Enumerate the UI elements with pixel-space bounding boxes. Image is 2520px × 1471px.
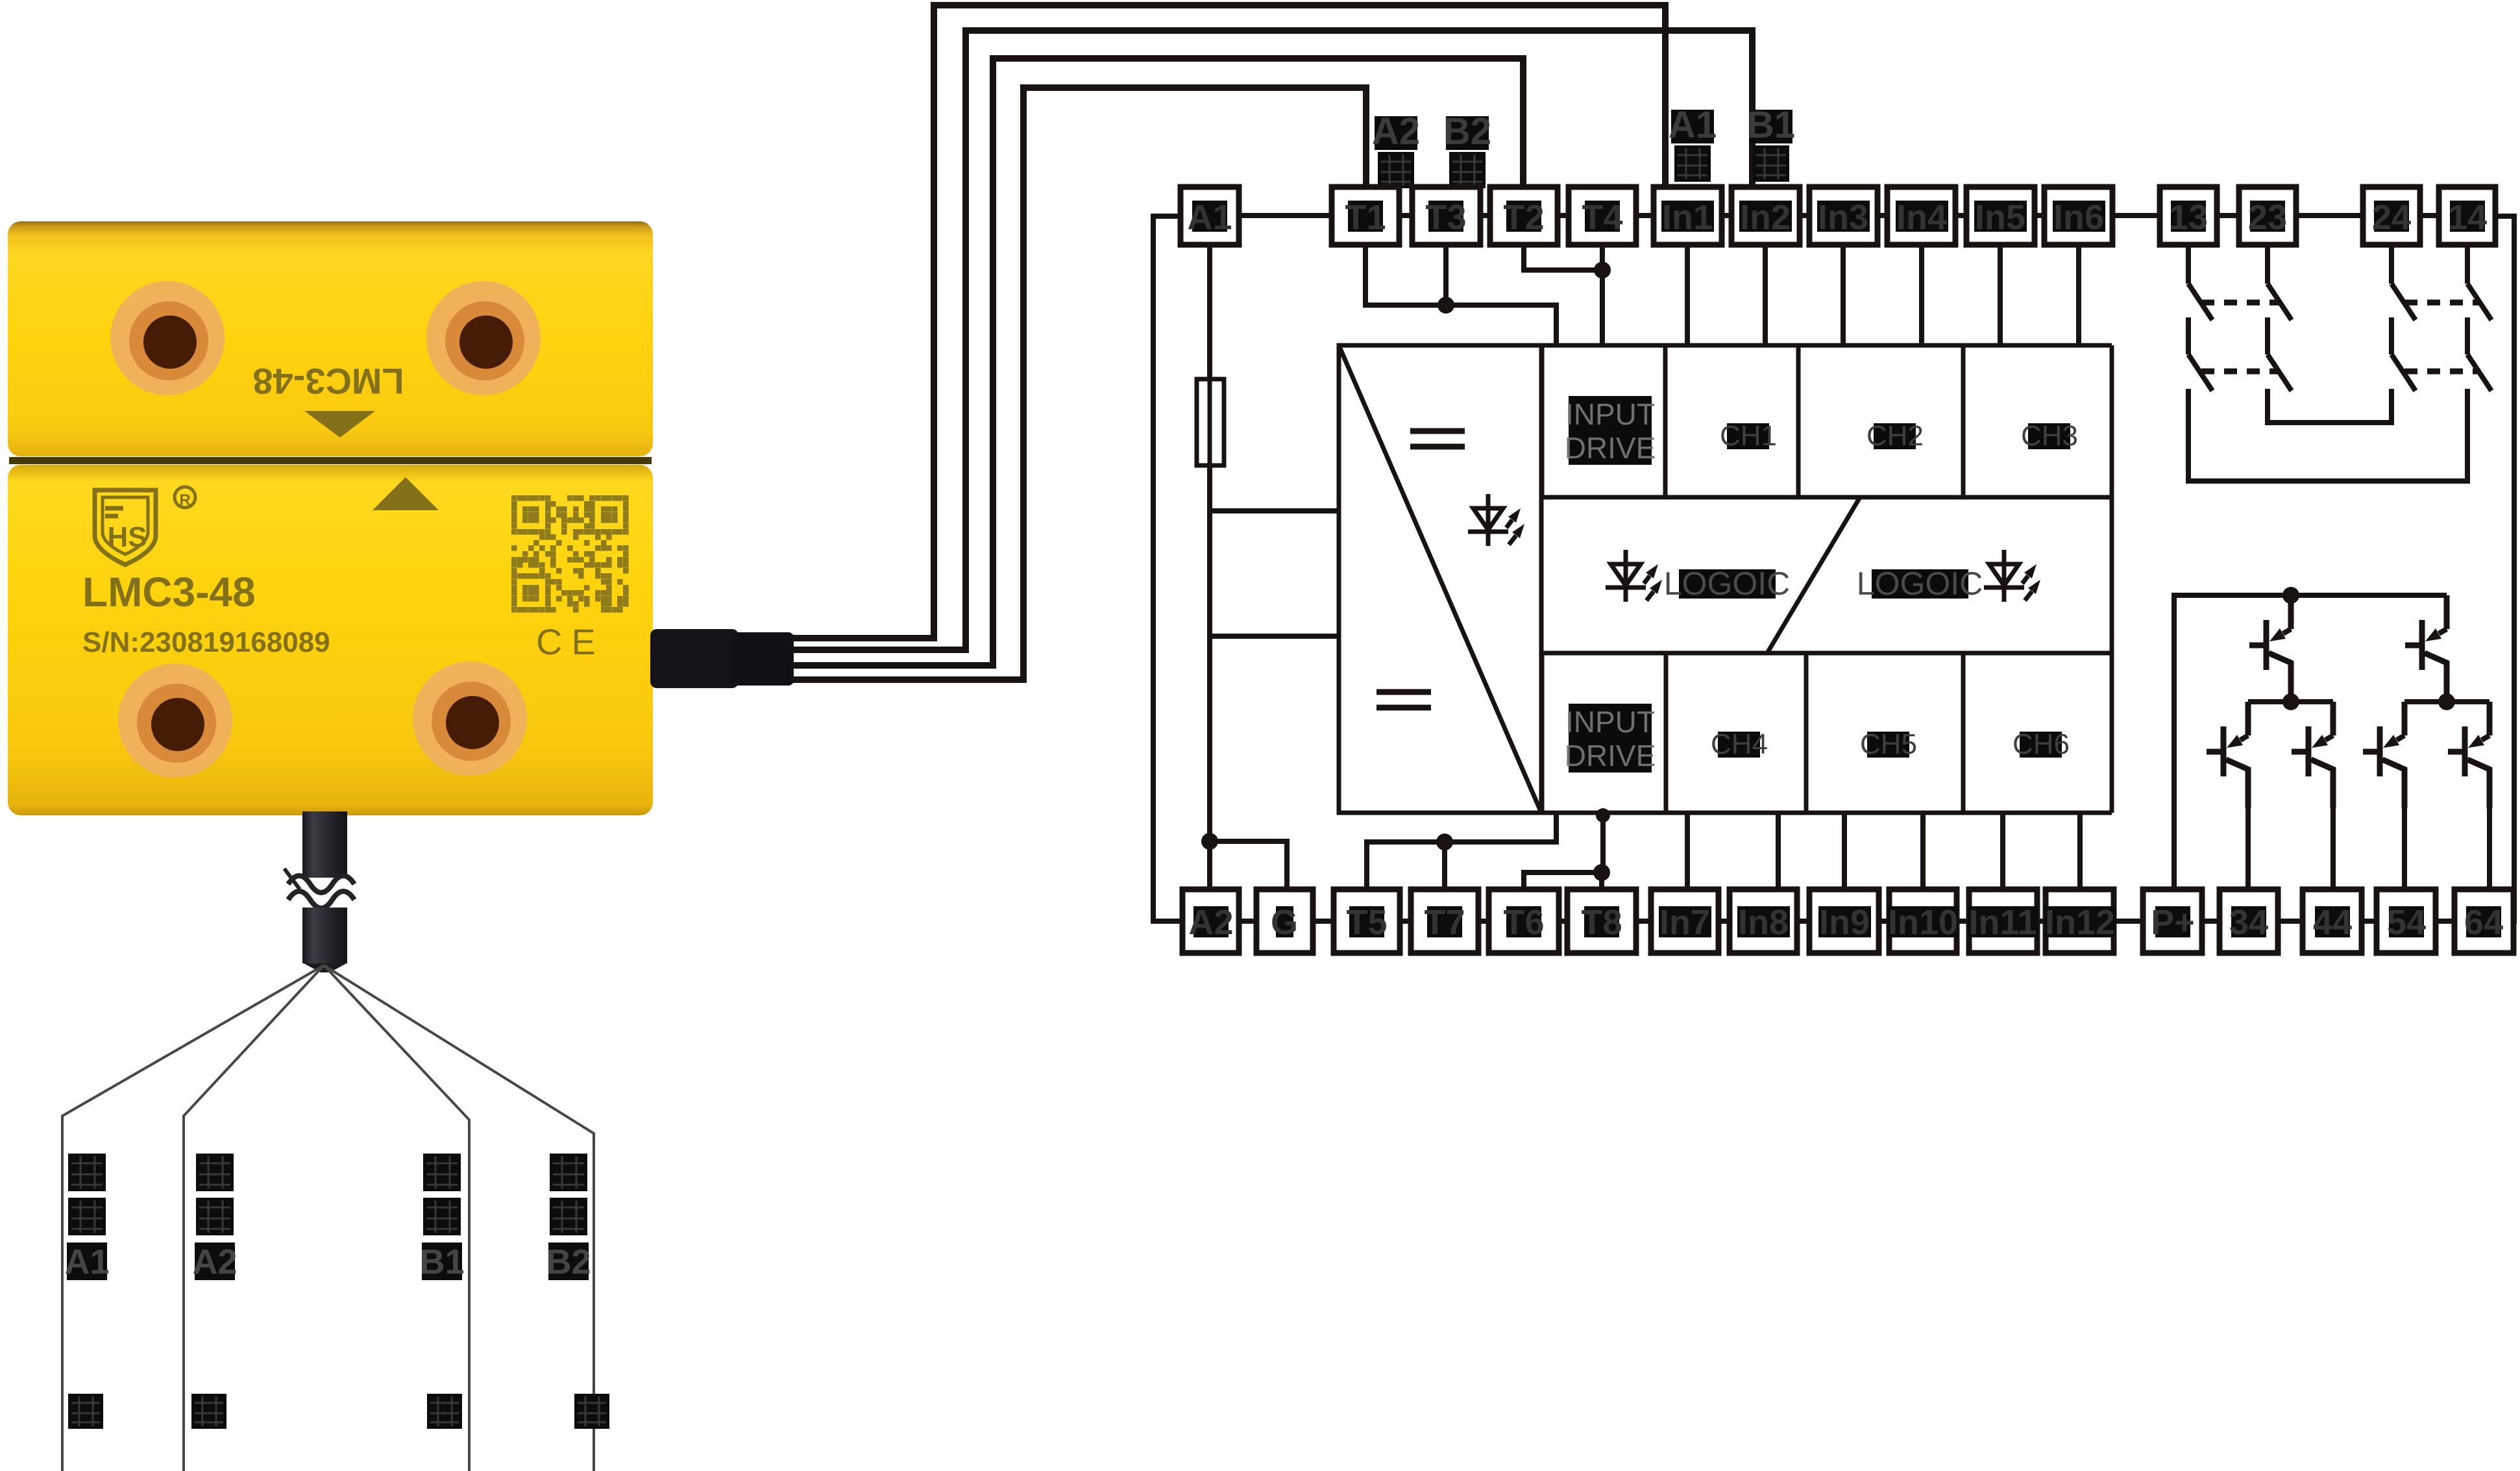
svg-text:A1: A1: [1187, 198, 1232, 237]
svg-text:In2: In2: [1740, 198, 1791, 237]
svg-text:In6: In6: [2053, 198, 2104, 237]
svg-text:T4: T4: [1582, 198, 1622, 237]
svg-text:CH6: CH6: [2012, 728, 2070, 760]
svg-text:In5: In5: [1975, 198, 2025, 237]
svg-text:LMC3-48: LMC3-48: [252, 361, 404, 402]
svg-text:DRIVE: DRIVE: [1565, 739, 1656, 773]
svg-text:CH5: CH5: [1860, 728, 1917, 760]
svg-text:S/N:230819168089: S/N:230819168089: [82, 626, 330, 658]
svg-text:A1: A1: [1669, 104, 1717, 146]
svg-text:23: 23: [2248, 198, 2287, 237]
svg-text:G: G: [1271, 903, 1298, 942]
svg-text:13: 13: [2169, 198, 2208, 237]
svg-text:T7: T7: [1424, 903, 1465, 942]
svg-text:T8: T8: [1581, 903, 1622, 942]
svg-text:44: 44: [2313, 903, 2352, 942]
svg-text:24: 24: [2372, 198, 2411, 237]
svg-text:LOGOIC: LOGOIC: [1857, 565, 1983, 602]
svg-text:A2: A2: [1188, 903, 1233, 942]
svg-text:T1: T1: [1345, 198, 1386, 237]
svg-text:CH4: CH4: [1711, 728, 1768, 760]
svg-text:In8: In8: [1738, 903, 1789, 942]
svg-text:In10: In10: [1888, 903, 1958, 942]
svg-text:In12: In12: [2045, 903, 2115, 942]
svg-text:LMC3-48: LMC3-48: [82, 569, 256, 615]
svg-text:DRIVE: DRIVE: [1565, 431, 1656, 465]
svg-text:64: 64: [2464, 903, 2503, 942]
svg-text:B2: B2: [1443, 110, 1491, 153]
svg-text:P+: P+: [2151, 903, 2195, 942]
svg-text:In1: In1: [1662, 198, 1713, 237]
svg-text:A2: A2: [1372, 110, 1420, 153]
svg-text:A1: A1: [64, 1242, 109, 1281]
svg-text:T5: T5: [1346, 903, 1387, 942]
svg-text:CH2: CH2: [1866, 420, 1924, 452]
svg-text:R: R: [179, 491, 190, 509]
svg-text:A2: A2: [192, 1242, 237, 1281]
svg-text:14: 14: [2448, 198, 2487, 237]
svg-text:34: 34: [2229, 903, 2268, 942]
svg-text:HS: HS: [107, 521, 147, 553]
svg-text:CH1: CH1: [1720, 420, 1777, 452]
svg-text:In4: In4: [1896, 198, 1947, 237]
svg-text:54: 54: [2387, 903, 2426, 942]
svg-text:B1: B1: [419, 1242, 464, 1281]
svg-text:CE: CE: [536, 621, 605, 662]
svg-text:T2: T2: [1503, 198, 1544, 237]
svg-text:INPUT: INPUT: [1565, 705, 1655, 739]
svg-text:B1: B1: [1747, 104, 1795, 146]
svg-text:LOGOIC: LOGOIC: [1664, 565, 1790, 602]
svg-text:In3: In3: [1818, 198, 1868, 237]
svg-text:B2: B2: [546, 1242, 591, 1281]
svg-text:In9: In9: [1819, 903, 1870, 942]
svg-text:In11: In11: [1968, 903, 2037, 942]
svg-text:T3: T3: [1425, 198, 1466, 237]
svg-text:T6: T6: [1503, 903, 1544, 942]
svg-text:CH3: CH3: [2021, 420, 2078, 452]
svg-text:In7: In7: [1659, 903, 1710, 942]
svg-text:INPUT: INPUT: [1565, 397, 1655, 431]
